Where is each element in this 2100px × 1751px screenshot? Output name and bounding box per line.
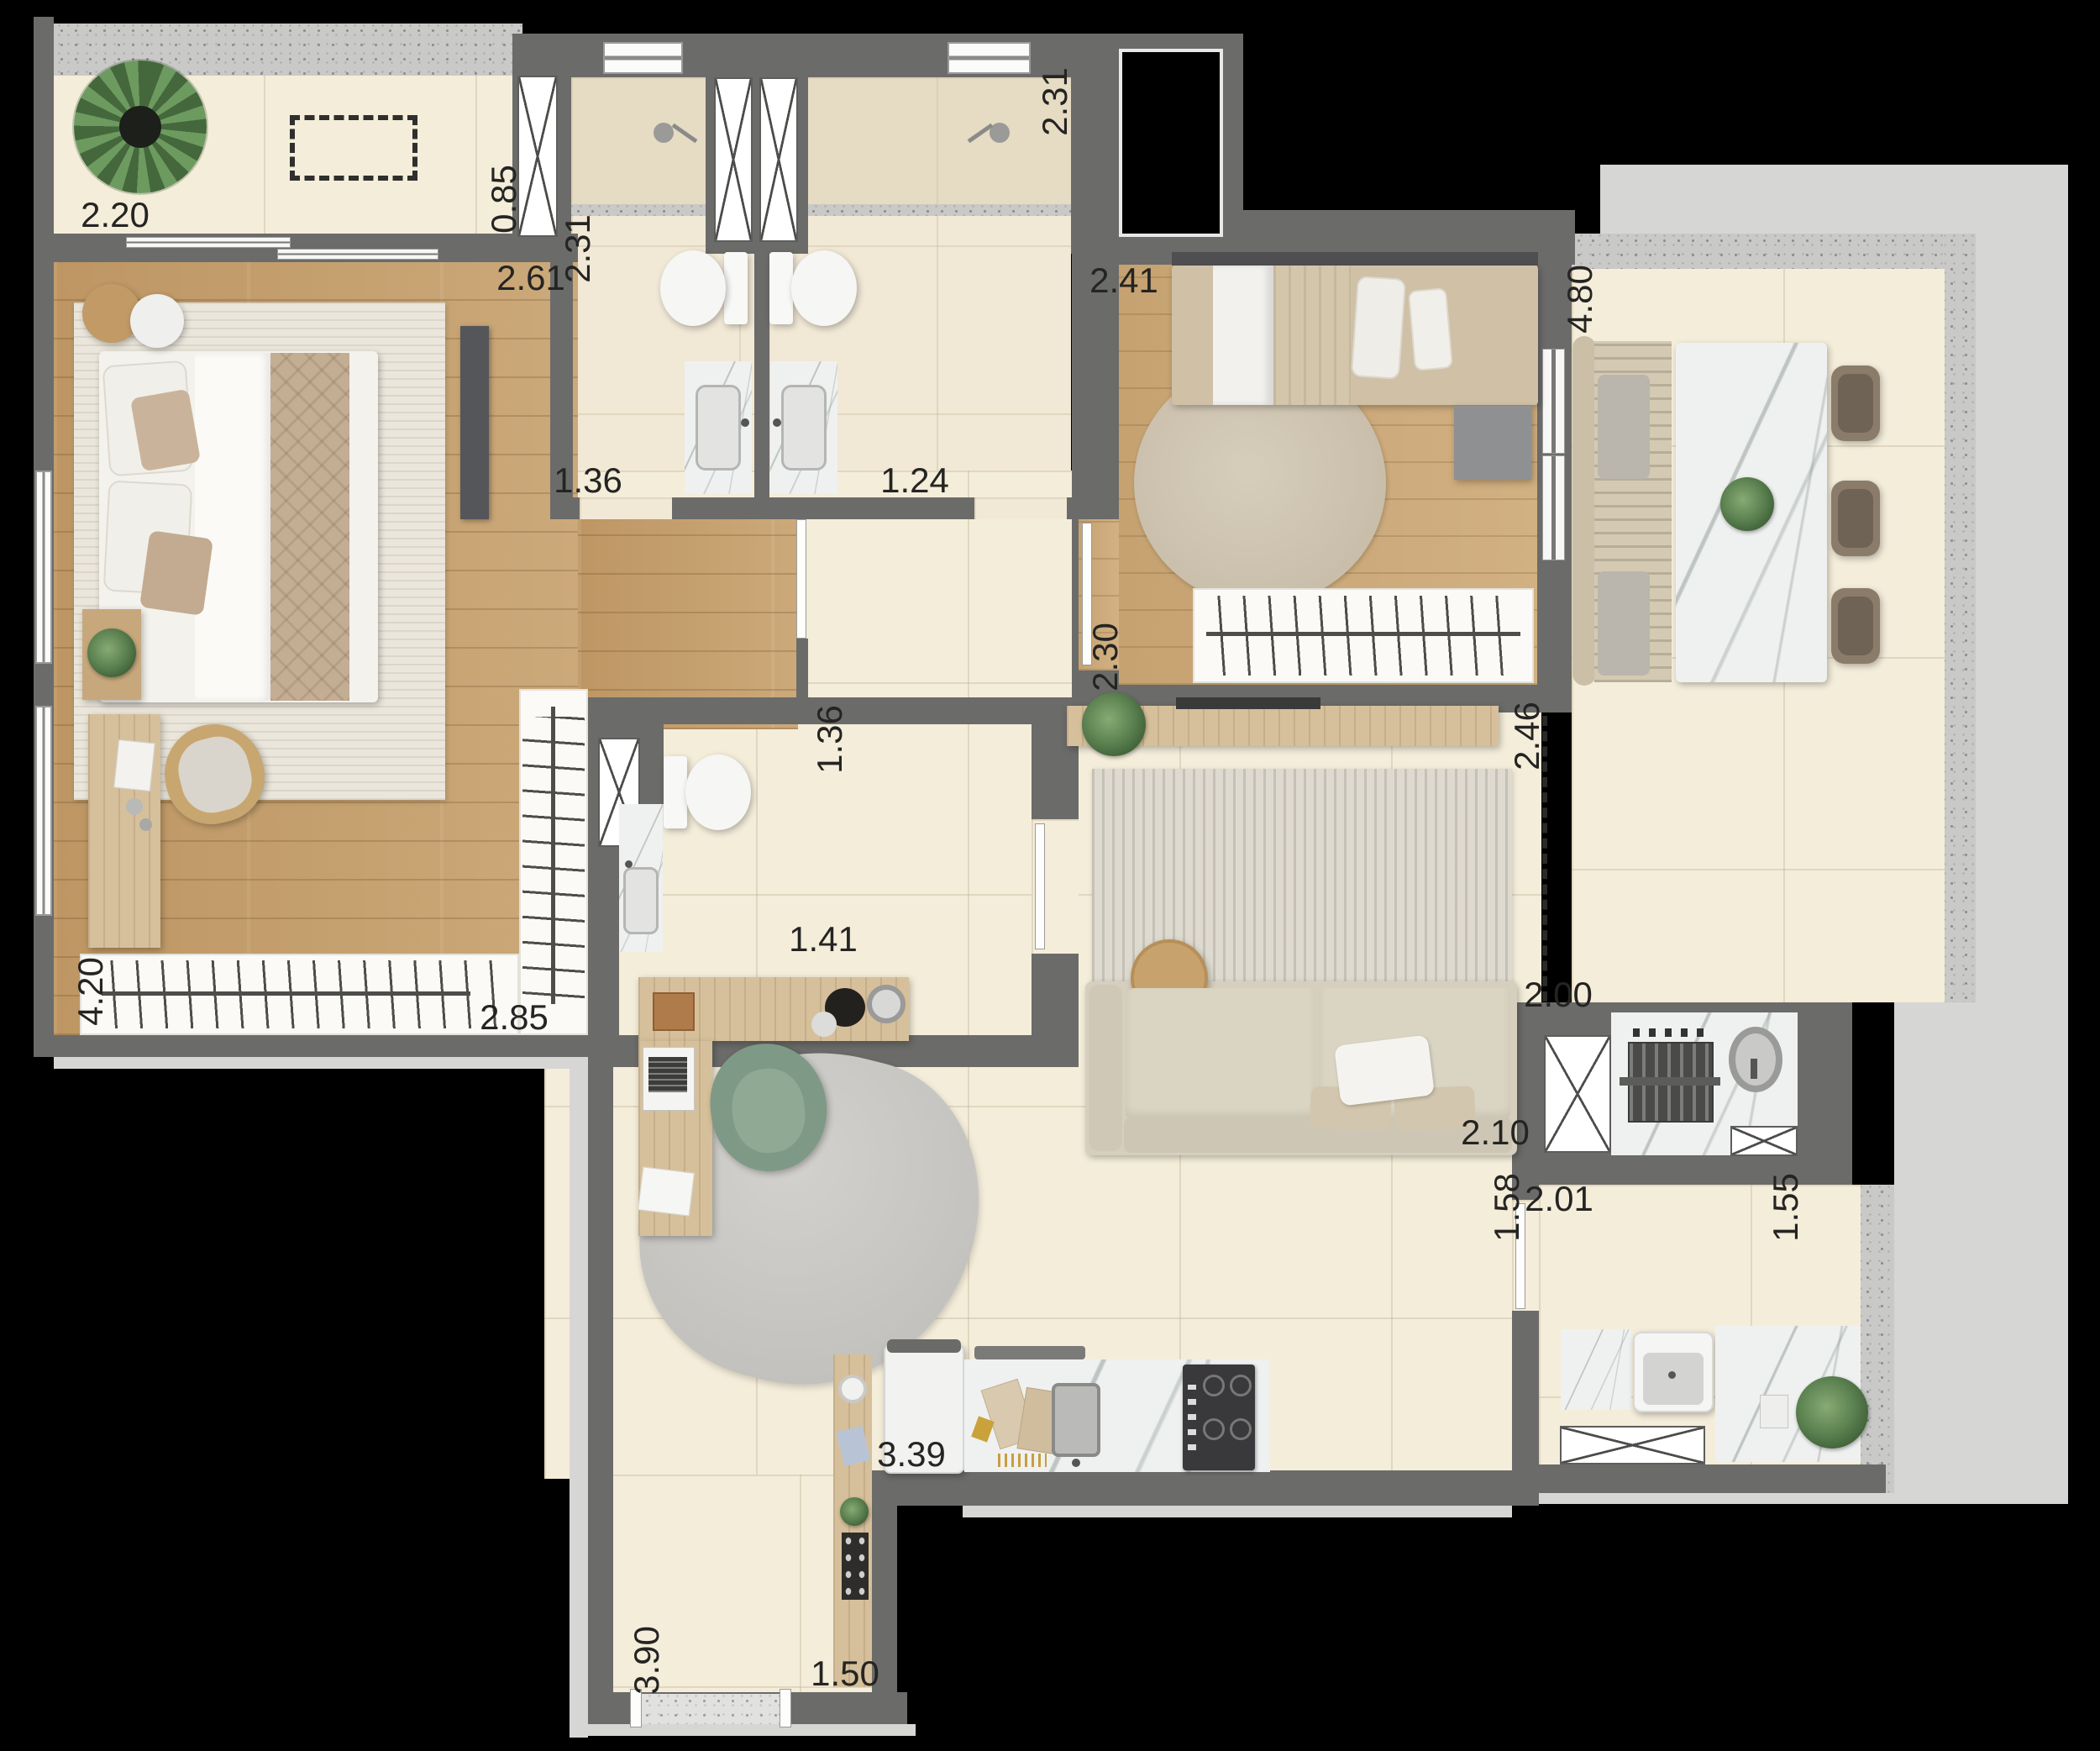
duct-shaft-3 [759, 77, 798, 242]
edge-vestibule-left [570, 1069, 588, 1738]
sink-bath1 [696, 385, 741, 471]
window-bath2 [948, 42, 1031, 74]
dimension-label: 4.80 [1562, 265, 1598, 334]
shower-area-2 [806, 77, 1071, 205]
desk-cup-1 [126, 798, 143, 815]
dimension-label: 2.31 [1037, 67, 1073, 136]
laptop-keyboard [648, 1057, 687, 1092]
fridge-top [887, 1339, 961, 1353]
utensil-rack [998, 1454, 1047, 1467]
dining-stool-3-seat [1838, 597, 1873, 655]
gourmet-sink-faucet [1751, 1059, 1757, 1079]
sideboard-plant [1082, 692, 1146, 756]
sofa-back-cushion-1 [1126, 988, 1315, 1121]
neighbor-area [1894, 1002, 2068, 1504]
door-leaf-bedroom1 [796, 519, 806, 639]
wardrobe-rod [551, 707, 555, 1004]
edge-laundry-bottom [1512, 1493, 1894, 1504]
dining-stool-2-seat [1838, 489, 1873, 548]
dimension-label: 1.36 [554, 463, 622, 498]
wall-between-baths [754, 254, 769, 497]
duct-shaft-gourmet-small [1730, 1126, 1798, 1156]
sofa-arm-left [1089, 985, 1122, 1151]
dimension-label: 1.58 [1489, 1173, 1525, 1242]
desk-book [113, 739, 155, 791]
dimension-label: 2.01 [1525, 1181, 1593, 1217]
toilet-tank-bath1 [724, 252, 748, 324]
dimension-label: 2.41 [1089, 263, 1158, 298]
dimension-label: 2.10 [1461, 1115, 1530, 1150]
dimension-label: 2.00 [1524, 977, 1593, 1012]
bed2-headboard [1172, 252, 1538, 266]
dimension-label: 2.31 [560, 214, 596, 283]
kitchen-faucet [1072, 1459, 1080, 1467]
dining-stool-1-seat [1838, 374, 1873, 433]
wall-laundry-bottom [1512, 1464, 1886, 1493]
toilet-tank-powder [664, 756, 687, 828]
burner-2 [1230, 1375, 1252, 1396]
terrace-parapet-top [1600, 165, 2068, 234]
pantry-plant [840, 1497, 869, 1526]
laundry-faucet [1668, 1371, 1676, 1379]
toilet-bowl-bath1 [660, 250, 726, 326]
sliding-door-bedroom2-b [1542, 455, 1565, 560]
nightstand-round-white [130, 294, 184, 348]
desk-box [653, 992, 695, 1031]
wall-hall-stub [796, 639, 808, 716]
nook-paper [638, 1166, 695, 1216]
terrace-parapet-right [1976, 234, 2068, 1002]
kitchen-sink [1052, 1383, 1100, 1457]
bench-pad-2 [1598, 571, 1650, 676]
appliance-slot-laundry [1560, 1426, 1705, 1464]
bedroom2-nightstand [1454, 406, 1531, 480]
bed-cushion-1 [130, 389, 201, 472]
bed2-sheet [1213, 266, 1273, 405]
sofa-pillow-white [1334, 1034, 1435, 1106]
door-gap-bath2 [974, 497, 1067, 519]
sink-bath2 [781, 385, 827, 471]
desk-plate [811, 1012, 837, 1037]
laundry-soap-box [1760, 1395, 1788, 1428]
duct-shaft-2 [714, 77, 753, 242]
laundry-plant [1796, 1376, 1868, 1449]
dimension-label: 1.24 [880, 463, 949, 498]
hood-shadow [974, 1346, 1085, 1359]
entry-jamb-right [780, 1689, 791, 1727]
pantry-plate [838, 1375, 867, 1403]
door-gap-bath1 [580, 497, 672, 519]
dimension-label: 2.46 [1509, 702, 1545, 770]
dimension-label: 3.39 [877, 1437, 946, 1472]
shower-area-1 [571, 77, 706, 205]
sink-powder [623, 867, 659, 934]
bed-duvet-fold [195, 353, 270, 701]
dimension-label: 2.30 [1088, 623, 1123, 691]
wall-living-right-b [1512, 1311, 1539, 1475]
faucet-bath2 [773, 418, 781, 427]
sliding-door-bedroom2-a [1542, 349, 1565, 454]
toilet-bowl-bath2 [791, 250, 857, 326]
burner-3 [1203, 1418, 1225, 1440]
bed-cushion-2 [139, 530, 213, 616]
sliding-door-balcony-a [126, 237, 291, 248]
shower-head-bath1 [654, 123, 674, 143]
bedroom1-bench-plant [87, 628, 136, 677]
dimension-label: 1.41 [789, 922, 858, 957]
dimension-label: 0.85 [486, 165, 522, 234]
faucet-powder [625, 860, 633, 868]
bed-quilt [270, 353, 349, 701]
dimension-label: 1.36 [812, 705, 848, 774]
window-bedroom1-b [35, 706, 52, 916]
dimension-label: 2.85 [480, 1000, 549, 1035]
bed2-pillow-1 [1351, 276, 1406, 380]
desk-bowl-gray [867, 985, 906, 1023]
wall-nook-left [588, 1067, 613, 1696]
terrace-wall-right [1945, 234, 1976, 1002]
balcony-plant [74, 60, 207, 193]
future-equipment-area [290, 115, 417, 181]
pantry-coffee-station [842, 1533, 869, 1600]
tv-on-sideboard [1176, 697, 1320, 709]
floor-plan: 2.200.852.312.312.611.361.242.414.802.30… [0, 0, 2100, 1751]
dimension-label: 2.61 [496, 260, 565, 296]
dimension-label: 4.20 [73, 957, 108, 1026]
window-bedroom1-a [35, 471, 52, 664]
bbq-grill-bar [1620, 1077, 1720, 1086]
desk-cup-2 [139, 818, 152, 831]
door-leaf-powder [1035, 823, 1045, 949]
dimension-label: 2.20 [81, 197, 150, 233]
bbq-knobs [1633, 1028, 1710, 1037]
toilet-tank-bath2 [769, 252, 793, 324]
sliding-door-balcony-b [277, 249, 438, 260]
light-well-void [1119, 49, 1223, 237]
dimension-label: 1.50 [811, 1656, 879, 1691]
terrace-bench-back [1572, 336, 1596, 686]
entry-threshold [640, 1694, 783, 1724]
wardrobe-bedroom1-vertical [519, 689, 588, 1035]
toilet-bowl-powder [685, 755, 751, 830]
dimension-label: 1.55 [1768, 1173, 1803, 1242]
faucet-bath1 [741, 418, 749, 427]
entry-jamb-left [630, 1689, 642, 1727]
wall-kitchen-bottom [872, 1470, 1539, 1506]
burner-4 [1230, 1418, 1252, 1440]
bedroom1-tv-panel [460, 326, 489, 519]
stove-knobs [1188, 1385, 1196, 1450]
window-bath1 [603, 42, 683, 74]
shower-drain-2 [806, 204, 1071, 216]
duct-shaft-gourmet [1544, 1035, 1611, 1153]
laundry-tub-basin [1643, 1353, 1704, 1405]
edge-kitchen-bottom [963, 1506, 1512, 1517]
dimension-label: 3.90 [629, 1626, 664, 1695]
duct-shaft-1 [517, 76, 558, 237]
wardrobe-bedroom2 [1193, 588, 1534, 683]
bed2-pillow-2 [1408, 287, 1453, 371]
wardrobe-rod [102, 991, 470, 996]
wardrobe-rod [1206, 632, 1520, 636]
edge-bottom-left-strip [54, 1057, 588, 1069]
wall-bedroom1-bottom [54, 1035, 588, 1057]
laundry-wall-right [1861, 1185, 1894, 1493]
bed2-blanket [1273, 266, 1351, 405]
bench-pad-1 [1598, 375, 1650, 479]
burner-1 [1203, 1375, 1225, 1396]
dining-table-plant [1720, 477, 1774, 531]
laundry-counter-left [1561, 1329, 1631, 1410]
edge-vestibule-bottom [570, 1724, 916, 1736]
wardrobe-bedroom1-horizontal [80, 954, 519, 1035]
terrace-wall-top [1572, 234, 1945, 269]
